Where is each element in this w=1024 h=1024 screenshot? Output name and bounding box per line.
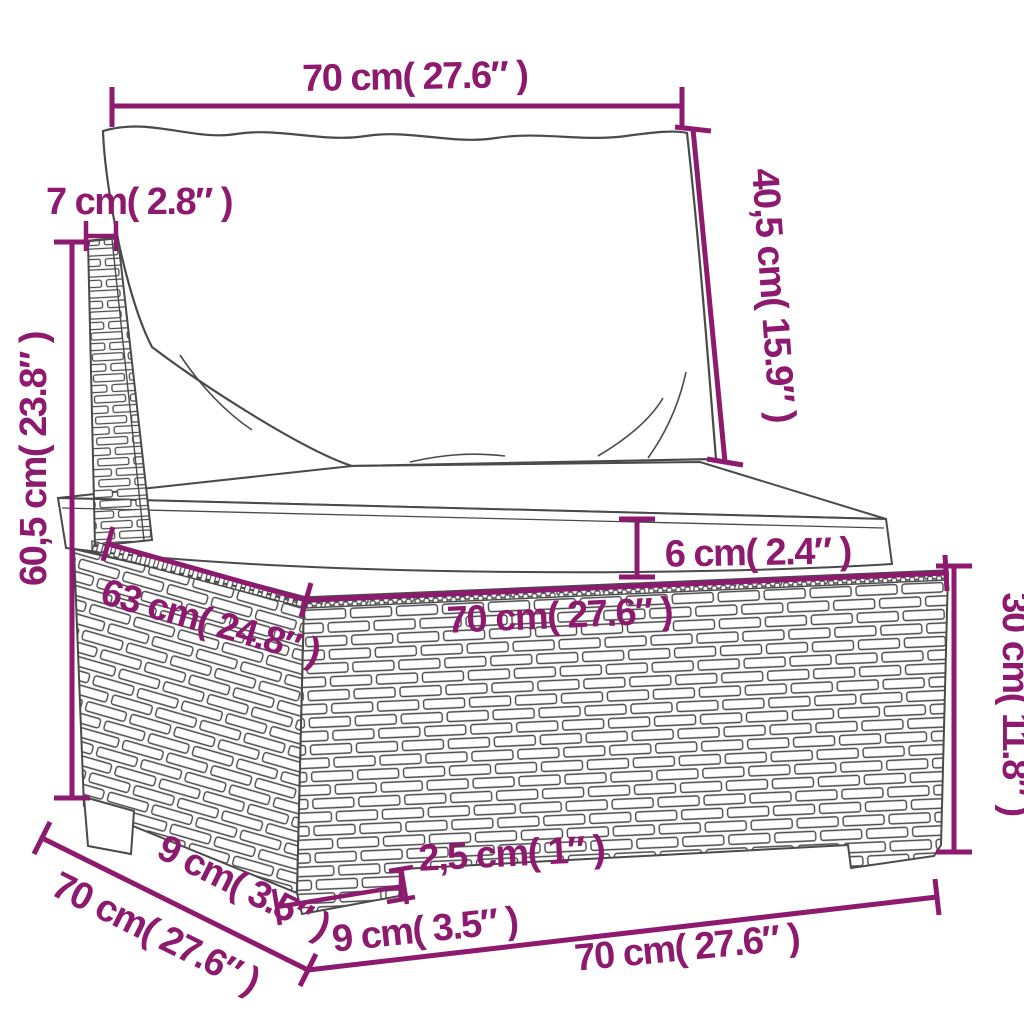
dim-label-top-width: 70 cm( 27.6″ )	[302, 54, 528, 100]
dim-label-total-height: 60,5 cm( 23.8″ )	[13, 332, 55, 586]
dim-label-plinth-height: 2,5 cm( 1″ )	[417, 828, 605, 880]
diagram-svg: 70 cm( 27.6″ ) 40,5 cm( 15.9″ ) 7 cm( 2.…	[0, 0, 1024, 1024]
dim-label-back-panel-thickness: 7 cm( 2.8″ )	[46, 181, 232, 223]
sofa-illustration	[58, 127, 948, 914]
dim-label-seat-cushion-thickness: 6 cm( 2.4″ )	[664, 530, 851, 575]
back-cushion	[103, 127, 716, 466]
dimension-diagram: 70 cm( 27.6″ ) 40,5 cm( 15.9″ ) 7 cm( 2.…	[0, 0, 1024, 1024]
dim-label-base-height: 30 cm( 11.8″ )	[994, 592, 1024, 815]
dim-label-back-cushion-height: 40,5 cm( 15.9″ )	[743, 167, 803, 423]
dim-label-front-leg-width: 9 cm( 3.5″ )	[330, 899, 519, 960]
